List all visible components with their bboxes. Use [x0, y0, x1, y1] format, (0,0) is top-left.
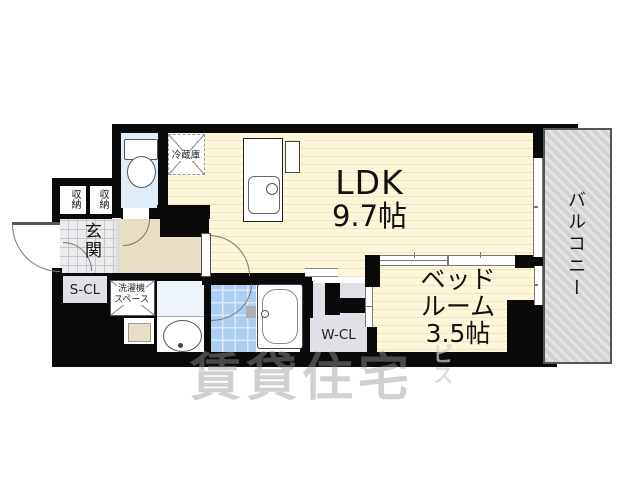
kitchen-faucet	[266, 183, 278, 195]
floorplan: S-CL W-CL 洗濯機 スペース 冷蔵庫 LDK	[0, 0, 640, 480]
kitchen-sink	[248, 176, 280, 214]
toilet-door-opening	[123, 208, 149, 219]
watermark-text: 賃貸住宅	[190, 336, 414, 410]
wall	[533, 133, 543, 158]
wall	[52, 178, 60, 224]
wall	[365, 255, 380, 287]
wall	[157, 205, 210, 219]
toilet-bowl	[127, 156, 156, 188]
washer-space-label: 洗濯機 スペース	[110, 284, 153, 306]
entrance-label: 玄関	[79, 222, 104, 260]
wall	[340, 298, 365, 313]
door-tick	[365, 306, 373, 307]
bedroom-size: 3.5帖	[403, 320, 513, 347]
window-tick	[533, 206, 538, 208]
bathtub-knob	[261, 310, 269, 318]
kitchen-cabinet	[285, 141, 300, 173]
bath-step	[246, 306, 256, 318]
slider-tick	[414, 252, 415, 258]
ldk-size: 9.7帖	[317, 200, 422, 232]
refrigerator-label: 冷蔵庫	[166, 147, 206, 161]
wall	[325, 283, 340, 315]
washbasin-faucet	[178, 343, 183, 348]
balcony-label: バルコニー	[562, 190, 588, 300]
entrance-door-arc	[12, 224, 60, 272]
shoe-closet-box: S-CL	[63, 276, 107, 303]
slider-tick	[380, 260, 448, 261]
ldk-label: LDK 9.7帖	[317, 166, 422, 232]
ldk-balcony-window	[533, 158, 543, 257]
wall	[112, 124, 121, 218]
storage-right-label: 収納	[95, 189, 110, 209]
bedroom-name-line2: ルーム	[403, 293, 513, 320]
wall	[52, 178, 121, 186]
bedroom-balcony-window	[534, 266, 543, 305]
wcl-counter-window	[305, 268, 338, 277]
wall	[60, 214, 112, 219]
shoe-closet-label: S-CL	[70, 282, 100, 298]
wall	[158, 133, 168, 213]
storage-left-label: 収納	[67, 189, 82, 209]
wall	[86, 186, 90, 214]
bedroom-name-line1: ベッド	[403, 266, 513, 293]
pipe-space	[128, 323, 151, 342]
bedroom-label: ベッド ルーム 3.5帖	[403, 266, 513, 347]
window-tick	[534, 284, 538, 286]
ldk-name: LDK	[317, 166, 422, 200]
slider-tick	[480, 252, 481, 258]
wall	[112, 124, 578, 133]
watermark-subtext: ビス	[427, 343, 457, 385]
